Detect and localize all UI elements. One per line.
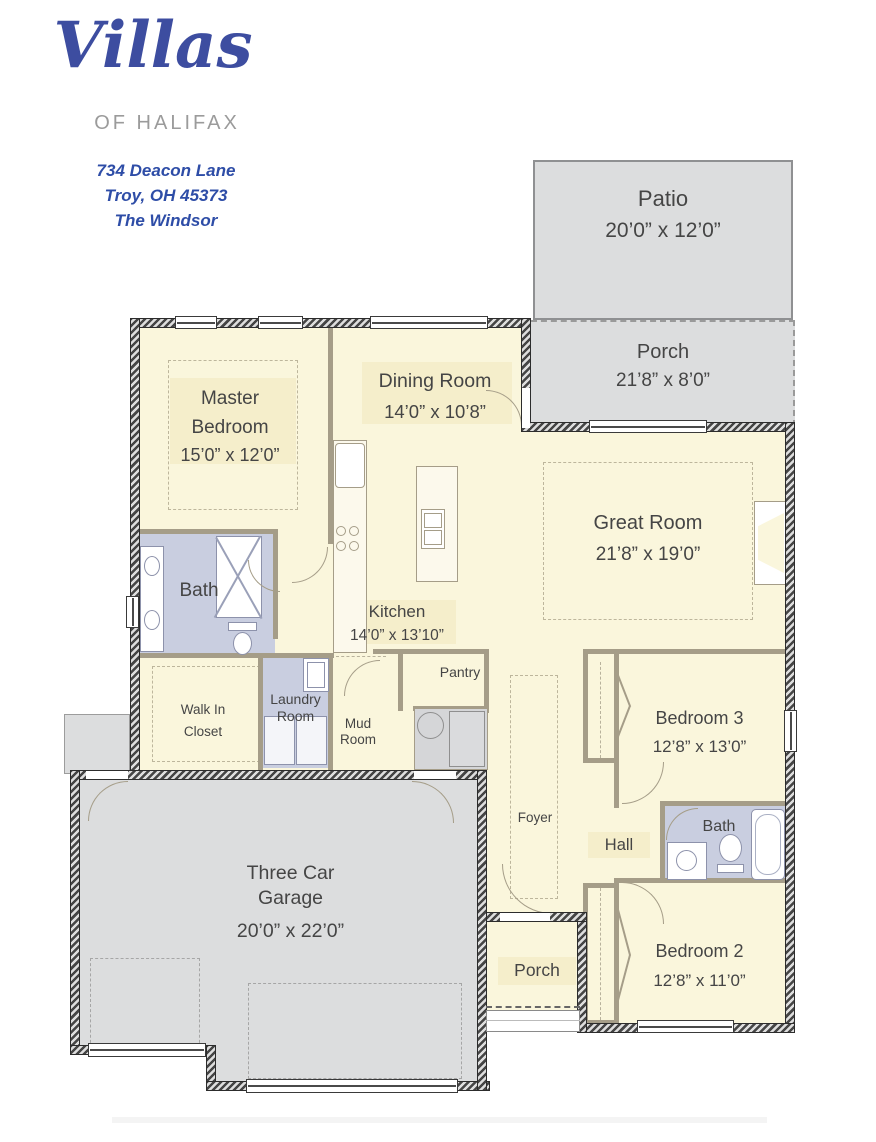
- room-name: Patio: [533, 186, 793, 212]
- door-opening: [522, 388, 530, 428]
- room-name: Bath: [684, 818, 754, 836]
- garage-door: [246, 1079, 458, 1093]
- window: [126, 596, 139, 628]
- room-name: Walk In: [149, 699, 257, 721]
- toilet-tank: [717, 864, 744, 873]
- cooktop-burner: [349, 526, 359, 536]
- window: [589, 420, 707, 433]
- garage-label: Three Car Garage 20’0” x 22’0”: [178, 861, 403, 943]
- room-dims: 15’0” x 12’0”: [160, 445, 300, 466]
- room-name: Three Car: [178, 861, 403, 886]
- walk-in-closet-label: Walk In Closet: [149, 699, 257, 743]
- master-bedroom-label: Master Bedroom 15’0” x 12’0”: [160, 384, 300, 466]
- front-porch-label: Porch: [492, 960, 582, 981]
- interior-wall: [373, 649, 489, 654]
- interior-wall: [660, 801, 791, 806]
- address-block: 734 Deacon Lane Troy, OH 45373 The Winds…: [42, 158, 290, 233]
- room-name: Hall: [587, 836, 651, 855]
- room-dims: 20’0” x 12’0”: [533, 219, 793, 243]
- address-line-2: Troy, OH 45373: [42, 183, 290, 208]
- interior-wall: [398, 653, 403, 711]
- room-dims: 14’0” x 13’10”: [337, 627, 457, 645]
- door-opening: [414, 771, 456, 779]
- interior-wall: [138, 529, 278, 534]
- room-name: Foyer: [506, 810, 564, 825]
- window: [258, 316, 303, 329]
- laundry-room-label: Laundry Room: [258, 691, 333, 725]
- room-dims: 14’0” x 10’8”: [355, 401, 515, 423]
- hall-label: Hall: [587, 836, 651, 855]
- mud-room-opening-dashed: [336, 656, 386, 657]
- plan-name: The Windsor: [42, 208, 290, 233]
- room-name: Mud: [326, 716, 390, 732]
- floor-plan-page: Villas of Halifax 734 Deacon Lane Troy, …: [0, 0, 876, 1142]
- room-name: Porch: [531, 341, 795, 364]
- door-opening: [86, 771, 128, 779]
- room-name: Porch: [492, 960, 582, 981]
- cooktop-burner: [349, 541, 359, 551]
- refrigerator: [335, 443, 365, 488]
- room-dims: 12’8” x 11’0”: [612, 971, 787, 991]
- room-dims: 20’0” x 22’0”: [178, 920, 403, 943]
- bedroom2-closet-rod: [600, 888, 601, 1020]
- logo-villas: Villas: [28, 8, 278, 83]
- master-bath-label: Bath: [159, 580, 239, 602]
- patio-label: Patio 20’0” x 12’0”: [533, 186, 793, 243]
- room-name: Laundry: [258, 691, 333, 708]
- great-room-label: Great Room 21’8” x 19’0”: [543, 512, 753, 566]
- room-name: Room: [258, 708, 333, 725]
- exterior-wall: [130, 318, 140, 779]
- front-door-opening: [500, 913, 550, 921]
- bedroom3-label: Bedroom 3 12’8” x 13’0”: [612, 708, 787, 757]
- garage-stoop: [64, 714, 130, 774]
- garage-car-spot-1: [90, 958, 200, 1048]
- room-name: Great Room: [543, 512, 753, 535]
- window: [370, 316, 488, 329]
- island-sink-basin: [424, 530, 442, 545]
- sink-basin: [676, 850, 697, 871]
- logo-subtitle: of Halifax: [62, 112, 272, 135]
- dining-room-label: Dining Room 14’0” x 10’8”: [355, 370, 515, 423]
- room-name: Kitchen: [337, 602, 457, 622]
- room-name: Closet: [149, 721, 257, 743]
- toilet-tank: [228, 622, 257, 631]
- sink-basin: [144, 556, 160, 576]
- furnace: [449, 711, 485, 767]
- interior-wall: [614, 763, 619, 808]
- room-name: Dining Room: [355, 370, 515, 393]
- room-dims: 21’8” x 8’0”: [531, 370, 795, 392]
- island-sink-basin: [424, 513, 442, 528]
- address-line-1: 734 Deacon Lane: [42, 158, 290, 183]
- kitchen-label: Kitchen 14’0” x 13’10”: [337, 602, 457, 645]
- bedroom3-closet-rod: [600, 662, 601, 758]
- room-name: Room: [326, 732, 390, 748]
- room-name: Bedroom 2: [612, 941, 787, 962]
- room-name: Bedroom 3: [612, 708, 787, 729]
- foyer-label: Foyer: [506, 810, 564, 825]
- cooktop-burner: [336, 526, 346, 536]
- toilet-bowl: [233, 632, 252, 655]
- bedroom2-label: Bedroom 2 12’8” x 11’0”: [612, 941, 787, 991]
- porch-edge-dashed: [486, 1006, 580, 1008]
- laundry-sink-basin: [307, 662, 325, 688]
- window: [175, 316, 217, 329]
- interior-wall: [583, 649, 588, 763]
- room-name: Bath: [159, 580, 239, 602]
- garage-car-spot-2: [248, 983, 462, 1079]
- mud-room-label: Mud Room: [326, 716, 390, 748]
- room-name: Garage: [178, 886, 403, 911]
- rear-porch-label: Porch 21’8” x 8’0”: [531, 341, 795, 392]
- porch-steps: [486, 1010, 580, 1032]
- pantry-label: Pantry: [424, 664, 496, 680]
- window: [637, 1020, 734, 1033]
- interior-wall: [660, 801, 665, 883]
- hall-bath-label: Bath: [684, 818, 754, 836]
- garage-wall: [477, 770, 487, 1091]
- sink-basin: [144, 610, 160, 630]
- water-heater: [417, 712, 444, 739]
- room-dims: 21’8” x 19’0”: [543, 544, 753, 566]
- room-name: Pantry: [424, 664, 496, 680]
- porch-step-line: [486, 1020, 580, 1021]
- bathtub-basin: [755, 814, 781, 875]
- cooktop-burner: [336, 541, 346, 551]
- footer-smudge: [112, 1117, 767, 1123]
- interior-wall: [484, 649, 489, 713]
- toilet-bowl: [719, 834, 742, 862]
- room-name: Master: [160, 384, 300, 413]
- room-name: Bedroom: [160, 413, 300, 442]
- room-dims: 12’8” x 13’0”: [612, 737, 787, 757]
- garage-wall: [70, 770, 80, 1055]
- garage-door: [88, 1043, 206, 1057]
